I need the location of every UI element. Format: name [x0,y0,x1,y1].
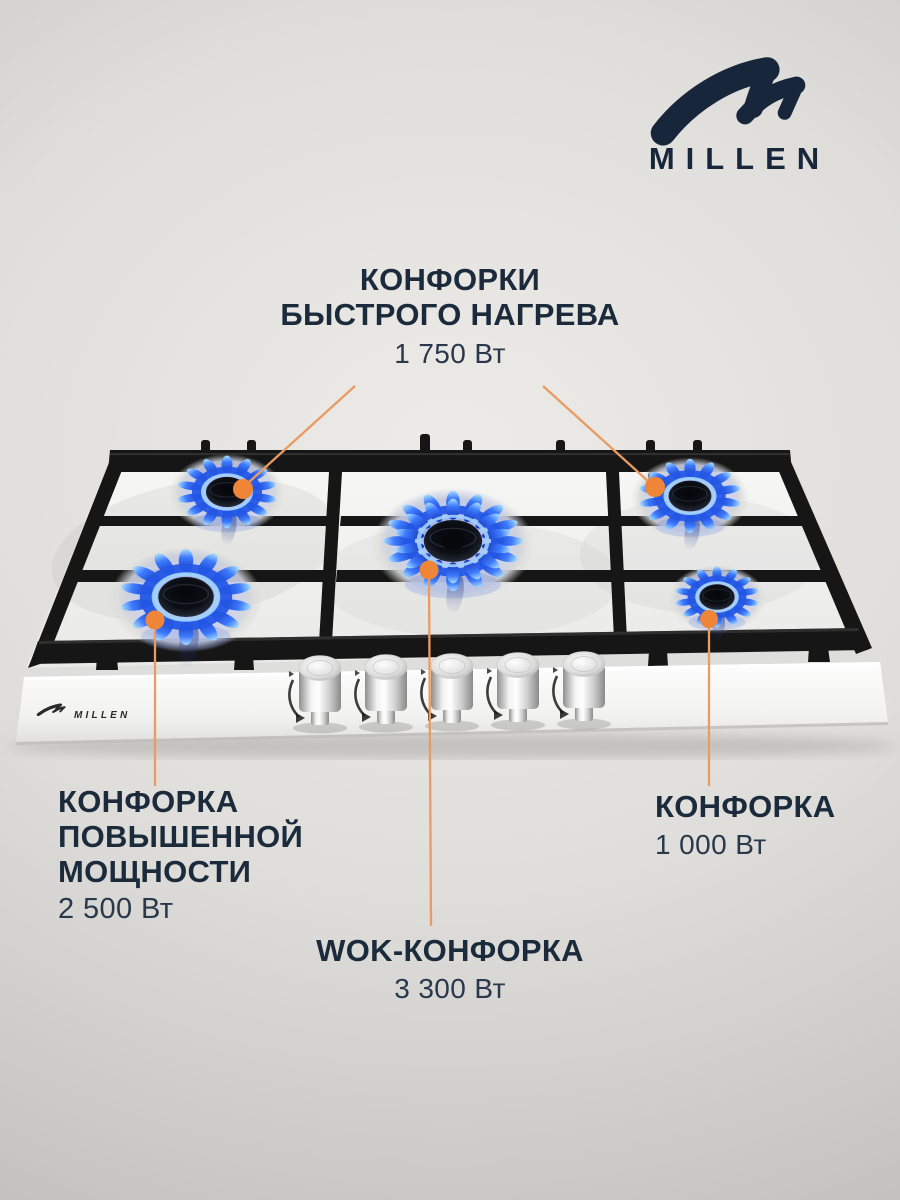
gas-hob-photo: MILLEN [0,430,900,760]
high-power-title-line3: МОЩНОСТИ [58,854,303,889]
high-power-title-line1: КОНФОРКА [58,784,303,819]
callout-high-power-burner: КОНФОРКА ПОВЫШЕННОЙ МОЩНОСТИ 2 500 Вт [58,784,303,926]
millen-logo-icon [648,54,820,146]
standard-title: КОНФОРКА [655,789,835,824]
callout-wok-burner: WOK-КОНФОРКА 3 300 Вт [0,933,900,1005]
callout-fast-burners: КОНФОРКИ БЫСТРОГО НАГРЕВА 1 750 Вт [0,262,900,370]
high-power-title-line2: ПОВЫШЕННОЙ [58,819,303,854]
panel-wordmark: MILLEN [74,710,130,721]
high-power-power: 2 500 Вт [58,893,303,926]
fast-burners-title-line1: КОНФОРКИ [0,262,900,297]
fast-burners-power: 1 750 Вт [0,337,900,370]
product-promo-image: MILLEN MILLEN КОНФОРКИ БЫСТРОГО НАГРЕВА … [0,0,900,1200]
wok-title: WOK-КОНФОРКА [0,933,900,968]
callout-standard-burner: КОНФОРКА 1 000 Вт [655,789,835,861]
fast-burners-title-line2: БЫСТРОГО НАГРЕВА [0,297,900,332]
standard-power: 1 000 Вт [655,828,835,861]
wok-power: 3 300 Вт [0,972,900,1005]
millen-wordmark: MILLEN [616,141,852,177]
